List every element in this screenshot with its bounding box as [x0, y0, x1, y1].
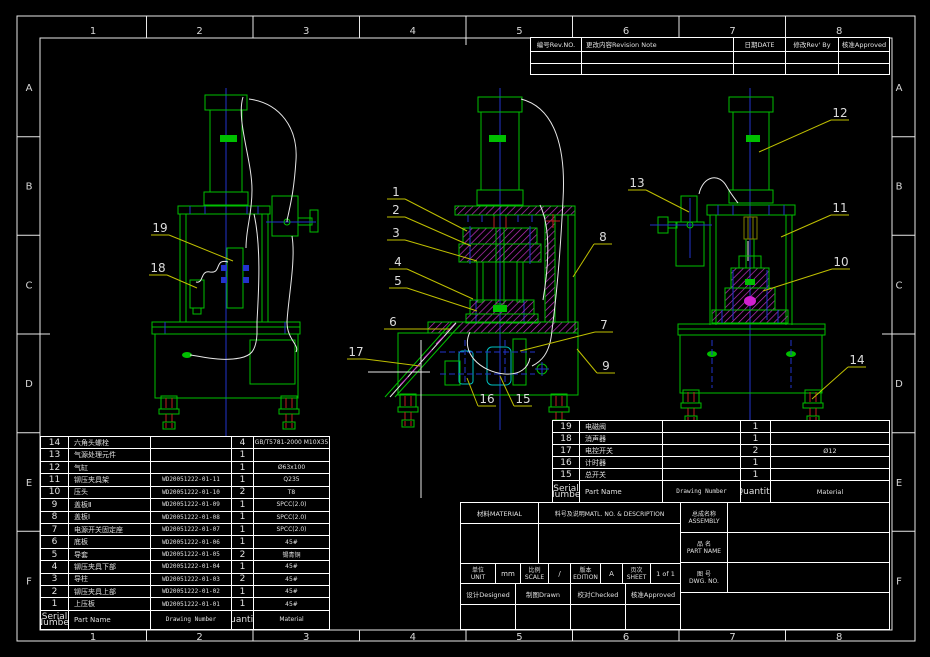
- sheet-label-cn: 页次: [630, 567, 642, 574]
- table-cell: 1: [231, 474, 253, 485]
- table-cell: 盖板Ⅱ: [68, 499, 150, 510]
- table-cell: 铆压夹具下部: [68, 561, 150, 572]
- edition-label: 版本 EDITION: [570, 563, 601, 584]
- table-cell: 2: [231, 574, 253, 585]
- assembly-value: [727, 502, 890, 533]
- table-cell: 编号Rev.NO.: [531, 38, 581, 51]
- table-row: 5导套WD20051222-01-052锡青铜: [41, 548, 329, 560]
- table-row: Serial NumberPart NameDrawing NumberQuan…: [553, 480, 889, 502]
- scale-label: 比例 SCALE: [520, 563, 549, 584]
- table-cell: 7: [41, 524, 68, 535]
- zone-letter-right: D: [895, 379, 903, 390]
- table-cell: Quantity: [231, 611, 253, 629]
- table-cell: 1: [231, 536, 253, 547]
- part-name-label-cn: 品 名: [697, 541, 711, 548]
- table-cell: [785, 52, 838, 63]
- zone-number-bottom: 3: [303, 632, 309, 643]
- table-cell: [662, 433, 740, 444]
- scale-label-cn: 比例: [528, 567, 540, 574]
- table-cell: 2: [740, 445, 770, 456]
- edition-label-cn: 版本: [579, 567, 591, 574]
- scale-value: /: [548, 563, 571, 584]
- table-cell: [733, 64, 785, 75]
- table-cell: WD20051222-01-09: [150, 499, 231, 510]
- table-cell: 1: [231, 598, 253, 609]
- table-cell: Material: [770, 481, 889, 502]
- table-cell: 11: [41, 474, 68, 485]
- table-cell: Quantity: [740, 481, 770, 502]
- table-row: 10压头WD20051222-01-102T8: [41, 486, 329, 498]
- table-cell: 45#: [253, 536, 329, 547]
- table-row: 18消声器1: [553, 432, 889, 444]
- table-cell: 总开关: [579, 469, 662, 480]
- edition-value: A: [600, 563, 623, 584]
- balloon-12: 12: [832, 106, 847, 120]
- zone-letter-right: B: [896, 182, 903, 193]
- table-cell: 核准Approved: [838, 38, 889, 51]
- table-cell: [150, 462, 231, 473]
- table-row: 8盖板ⅠWD20051222-01-081SPCC(2.0): [41, 511, 329, 523]
- title-block-blank: [680, 592, 890, 630]
- revision-table: 编号Rev.NO.更改内容Revision Note日期DATE修改Rev' B…: [530, 37, 890, 75]
- approved-signature: [625, 604, 681, 630]
- table-cell: 2: [231, 487, 253, 498]
- zone-number-bottom: 2: [196, 632, 202, 643]
- zone-letter-right: E: [896, 478, 902, 489]
- table-cell: WD20051222-01-02: [150, 586, 231, 597]
- table-cell: 更改内容Revision Note: [581, 38, 733, 51]
- table-cell: 16: [553, 457, 579, 468]
- dwg-no-label: 图 号 DWG. NO.: [680, 562, 728, 593]
- table-row: 13气源处理元件1: [41, 448, 329, 460]
- table-cell: 导柱: [68, 574, 150, 585]
- unit-label-en: UNIT: [471, 574, 485, 581]
- zone-number-bottom: 4: [410, 632, 416, 643]
- table-cell: 45#: [253, 561, 329, 572]
- leader-line: [646, 190, 689, 212]
- view-right-elevation: [650, 88, 825, 462]
- table-cell: 14: [41, 437, 68, 448]
- zone-number-top: 5: [516, 26, 522, 37]
- zone-letter-right: A: [896, 83, 903, 94]
- part-name-value: [727, 532, 890, 563]
- table-cell: 压头: [68, 487, 150, 498]
- leader-line: [169, 235, 233, 261]
- table-cell: 1: [231, 499, 253, 510]
- dwg-no-value: [727, 562, 890, 593]
- table-cell: [253, 449, 329, 460]
- table-cell: GB/T5781-2000 M10X35: [253, 437, 329, 448]
- part-name-label: 品 名 PART NAME: [680, 532, 728, 563]
- leader-line: [759, 120, 831, 152]
- drawn-signature: [515, 604, 571, 630]
- table-cell: 45#: [253, 586, 329, 597]
- sheet-label: 页次 SHEET: [622, 563, 651, 584]
- table-cell: WD20051222-01-01: [150, 598, 231, 609]
- table-cell: 铆压夹具架: [68, 474, 150, 485]
- table-cell: 19: [553, 421, 579, 432]
- balloon-4: 4: [394, 255, 402, 269]
- leader-line: [573, 244, 594, 277]
- leader-line: [407, 288, 477, 311]
- table-row: 19电磁阀1: [553, 421, 889, 432]
- table-cell: [770, 457, 889, 468]
- table-cell: 45#: [253, 598, 329, 609]
- table-cell: [581, 64, 733, 75]
- table-cell: 6: [41, 536, 68, 547]
- table-cell: 1: [41, 598, 68, 609]
- balloon-14: 14: [849, 353, 864, 367]
- table-cell: Serial Number: [553, 481, 579, 502]
- leader-line: [812, 367, 848, 399]
- table-row: 1上压板WD20051222-01-01145#: [41, 597, 329, 609]
- balloon-7: 7: [600, 318, 608, 332]
- designed-label: 设计Designed: [460, 583, 516, 605]
- table-cell: [662, 445, 740, 456]
- dwg-no-label-cn: 图 号: [697, 571, 711, 578]
- balloon-3: 3: [392, 226, 400, 240]
- zone-number-top: 8: [836, 26, 842, 37]
- assembly-label: 总成名称 ASSEMBLY: [680, 502, 728, 533]
- balloon-10: 10: [833, 255, 848, 269]
- table-cell: 3: [41, 574, 68, 585]
- table-row: 14六角头螺栓4GB/T5781-2000 M10X35: [41, 437, 329, 448]
- leader-line: [500, 376, 514, 406]
- table-cell: [770, 469, 889, 480]
- balloon-1: 1: [392, 185, 400, 199]
- table-cell: 电磁阀: [579, 421, 662, 432]
- table-row: 15总开关1: [553, 468, 889, 480]
- zone-number-top: 3: [303, 26, 309, 37]
- leader-line: [763, 269, 832, 291]
- zone-number-top: 6: [623, 26, 629, 37]
- checked-label: 校对Checked: [570, 583, 626, 605]
- table-cell: 1: [231, 512, 253, 523]
- table-cell: [770, 433, 889, 444]
- table-cell: WD20051222-01-05: [150, 549, 231, 560]
- table-row: 编号Rev.NO.更改内容Revision Note日期DATE修改Rev' B…: [531, 38, 889, 51]
- table-cell: [785, 64, 838, 75]
- table-cell: WD20051222-01-07: [150, 524, 231, 535]
- zone-number-bottom: 7: [729, 632, 735, 643]
- leader-line: [781, 215, 831, 237]
- zone-number-top: 7: [729, 26, 735, 37]
- scale-label-en: SCALE: [525, 574, 544, 581]
- zone-number-bottom: 8: [836, 632, 842, 643]
- table-cell: 计时器: [579, 457, 662, 468]
- balloon-18: 18: [150, 261, 165, 275]
- table-cell: 气源处理元件: [68, 449, 150, 460]
- table-cell: 1: [740, 433, 770, 444]
- table-cell: 4: [41, 561, 68, 572]
- drawn-label: 制图Drawn: [515, 583, 571, 605]
- zone-number-bottom: 6: [623, 632, 629, 643]
- table-cell: [733, 52, 785, 63]
- table-cell: [581, 52, 733, 63]
- table-cell: 18: [553, 433, 579, 444]
- table-cell: WD20051222-01-03: [150, 574, 231, 585]
- table-cell: 电源开关固定座: [68, 524, 150, 535]
- table-row: Serial NumberPart NameDrawing NumberQuan…: [41, 610, 329, 629]
- balloon-16: 16: [479, 392, 494, 406]
- sheet-value: 1 of 1: [650, 563, 681, 584]
- description-value: [538, 523, 681, 564]
- cad-drawing-sheet: 1234567812345678ABCDEFABCDEF191812345617…: [0, 0, 930, 657]
- table-cell: 2: [41, 586, 68, 597]
- zone-number-top: 4: [410, 26, 416, 37]
- table-cell: [150, 449, 231, 460]
- table-cell: 45#: [253, 574, 329, 585]
- table-cell: SPCC(2.0): [253, 524, 329, 535]
- balloon-19: 19: [152, 221, 167, 235]
- table-row: [531, 63, 889, 75]
- table-cell: 六角头螺栓: [68, 437, 150, 448]
- table-cell: 9: [41, 499, 68, 510]
- table-cell: 底板: [68, 536, 150, 547]
- table-cell: Ø12: [770, 445, 889, 456]
- table-row: 7电源开关固定座WD20051222-01-071SPCC(2.0): [41, 523, 329, 535]
- table-cell: 导套: [68, 549, 150, 560]
- table-cell: Drawing Number: [150, 611, 231, 629]
- table-cell: Serial Number: [41, 611, 68, 629]
- view-left-elevation: [152, 88, 318, 460]
- balloon-9: 9: [602, 359, 610, 373]
- table-cell: [838, 64, 889, 75]
- checked-signature: [570, 604, 626, 630]
- table-cell: 消声器: [579, 433, 662, 444]
- zone-letter-left: D: [25, 379, 33, 390]
- zone-number-bottom: 1: [90, 632, 96, 643]
- description-label: 料号及说明MATL. NO. & DESCRIPTION: [538, 502, 681, 524]
- table-cell: [531, 52, 581, 63]
- table-cell: Part Name: [68, 611, 150, 629]
- table-row: 12气缸1Ø63x100: [41, 461, 329, 473]
- table-cell: 1: [231, 586, 253, 597]
- zone-letter-left: F: [26, 577, 32, 588]
- leader-line: [577, 349, 597, 373]
- balloon-2: 2: [392, 203, 400, 217]
- table-row: 2铆压夹具上部WD20051222-01-02145#: [41, 585, 329, 597]
- table-cell: 日期DATE: [733, 38, 785, 51]
- parts-list-main: 14六角头螺栓4GB/T5781-2000 M10X3513气源处理元件112气…: [40, 436, 330, 630]
- designed-signature: [460, 604, 516, 630]
- balloon-8: 8: [599, 230, 607, 244]
- table-cell: Material: [253, 611, 329, 629]
- table-cell: SPCC(2.0): [253, 512, 329, 523]
- table-cell: 修改Rev' By: [785, 38, 838, 51]
- balloon-11: 11: [832, 201, 847, 215]
- balloon-6: 6: [389, 315, 397, 329]
- zone-letter-left: A: [26, 83, 33, 94]
- leader-line: [167, 275, 197, 288]
- table-cell: WD20051222-01-11: [150, 474, 231, 485]
- table-row: 6底板WD20051222-01-06145#: [41, 535, 329, 547]
- zone-number-bottom: 5: [516, 632, 522, 643]
- table-cell: 铆压夹具上部: [68, 586, 150, 597]
- zone-letter-left: C: [26, 280, 33, 291]
- zone-letter-right: C: [896, 280, 903, 291]
- table-row: [531, 51, 889, 63]
- table-cell: [770, 421, 889, 432]
- balloon-15: 15: [515, 392, 530, 406]
- table-cell: [662, 457, 740, 468]
- dwg-no-label-en: DWG. NO.: [689, 578, 719, 585]
- table-cell: 13: [41, 449, 68, 460]
- approved-label: 核准Approved: [625, 583, 681, 605]
- table-cell: [531, 64, 581, 75]
- table-cell: 1: [231, 561, 253, 572]
- table-cell: 2: [231, 549, 253, 560]
- table-row: 16计时器1: [553, 456, 889, 468]
- table-cell: 10: [41, 487, 68, 498]
- table-cell: Ø63x100: [253, 462, 329, 473]
- zone-letter-left: B: [26, 182, 33, 193]
- table-row: 3导柱WD20051222-01-03245#: [41, 573, 329, 585]
- table-cell: WD20051222-01-04: [150, 561, 231, 572]
- table-cell: 上压板: [68, 598, 150, 609]
- zone-letter-right: F: [896, 577, 902, 588]
- table-cell: [662, 469, 740, 480]
- table-row: 17电控开关2Ø12: [553, 444, 889, 456]
- table-cell: Drawing Number: [662, 481, 740, 502]
- table-cell: 8: [41, 512, 68, 523]
- table-cell: [838, 52, 889, 63]
- table-cell: 电控开关: [579, 445, 662, 456]
- balloon-13: 13: [629, 176, 644, 190]
- table-cell: WD20051222-01-06: [150, 536, 231, 547]
- table-cell: 气缸: [68, 462, 150, 473]
- leader-line: [365, 359, 420, 366]
- table-cell: 1: [740, 421, 770, 432]
- unit-value: mm: [495, 563, 521, 584]
- table-cell: 15: [553, 469, 579, 480]
- table-cell: 盖板Ⅰ: [68, 512, 150, 523]
- table-cell: 12: [41, 462, 68, 473]
- table-cell: 1: [231, 524, 253, 535]
- table-cell: SPCC(2.0): [253, 499, 329, 510]
- leader-line: [407, 269, 473, 299]
- table-cell: 1: [740, 457, 770, 468]
- table-cell: WD20051222-01-10: [150, 487, 231, 498]
- unit-label: 单位 UNIT: [460, 563, 496, 584]
- material-label: 材料MATERIAL: [460, 502, 539, 524]
- parts-list-right: 19电磁阀118消声器117电控开关2Ø1216计时器115总开关1Serial…: [552, 420, 890, 503]
- material-value: [460, 523, 539, 564]
- leader-line: [405, 217, 471, 246]
- balloon-5: 5: [394, 274, 402, 288]
- balloon-17: 17: [348, 345, 363, 359]
- table-cell: 1: [231, 449, 253, 460]
- table-row: 11铆压夹具架WD20051222-01-111Q235: [41, 473, 329, 485]
- table-cell: Q235: [253, 474, 329, 485]
- table-cell: [662, 421, 740, 432]
- zone-number-top: 2: [196, 26, 202, 37]
- table-cell: 5: [41, 549, 68, 560]
- part-name-label-en: PART NAME: [687, 548, 721, 555]
- table-cell: WD20051222-01-08: [150, 512, 231, 523]
- assembly-label-en: ASSEMBLY: [688, 518, 719, 525]
- table-cell: 1: [231, 462, 253, 473]
- assembly-label-cn: 总成名称: [692, 511, 716, 518]
- zone-letter-left: E: [26, 478, 32, 489]
- table-row: 4铆压夹具下部WD20051222-01-04145#: [41, 560, 329, 572]
- table-cell: Part Name: [579, 481, 662, 502]
- edition-label-en: EDITION: [573, 574, 598, 581]
- table-row: 9盖板ⅡWD20051222-01-091SPCC(2.0): [41, 498, 329, 510]
- table-cell: [150, 437, 231, 448]
- unit-label-cn: 单位: [472, 567, 484, 574]
- leader-line: [520, 332, 595, 351]
- sheet-label-en: SHEET: [627, 574, 647, 581]
- view-middle-section: [368, 88, 578, 498]
- table-cell: 1: [740, 469, 770, 480]
- table-cell: 4: [231, 437, 253, 448]
- table-cell: 17: [553, 445, 579, 456]
- table-cell: 锡青铜: [253, 549, 329, 560]
- zone-number-top: 1: [90, 26, 96, 37]
- table-cell: T8: [253, 487, 329, 498]
